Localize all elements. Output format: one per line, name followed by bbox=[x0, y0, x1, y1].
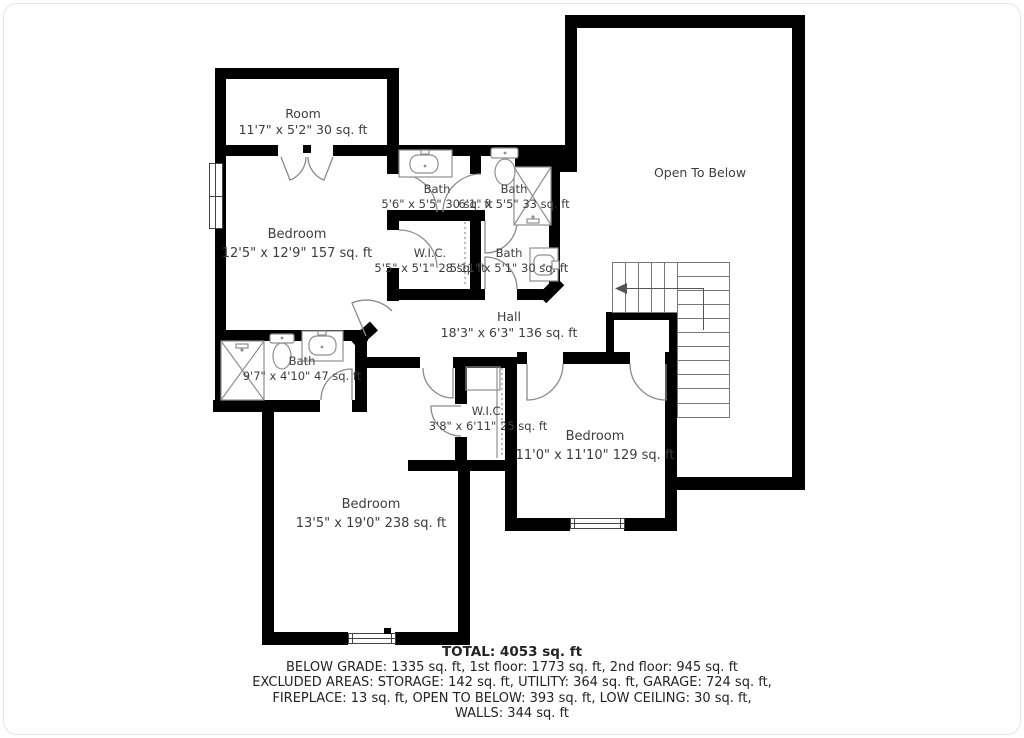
wall-segment bbox=[360, 357, 420, 368]
wall-segment bbox=[606, 312, 677, 320]
floor-plan-page: Room 11'7" x 5'2" 30 sq. ft Bedroom 12'5… bbox=[0, 0, 1024, 738]
door-swing bbox=[423, 368, 453, 398]
wall-segment bbox=[565, 15, 805, 28]
stair-flight-right bbox=[678, 263, 730, 418]
room-label-open-to-below: Open To Below bbox=[654, 165, 746, 181]
wall-segment bbox=[505, 518, 570, 531]
wall-segment bbox=[517, 352, 527, 364]
wall-segment bbox=[677, 477, 805, 490]
wall-segment bbox=[470, 148, 481, 174]
room-label-hall: Hall 18'3" x 6'3" 136 sq. ft bbox=[441, 309, 578, 341]
wall-diagonal bbox=[542, 281, 560, 299]
room-label-room: Room 11'7" x 5'2" 30 sq. ft bbox=[239, 106, 368, 138]
summary-floors: BELOW GRADE: 1335 sq. ft, 1st floor: 177… bbox=[0, 660, 1024, 675]
room-label-bedroom-bl: Bedroom 13'5" x 19'0" 238 sq. ft bbox=[296, 495, 447, 533]
closet-shelf bbox=[466, 367, 500, 390]
stair-direction-arrow-icon bbox=[615, 283, 627, 294]
area-summary: TOTAL: 4053 sq. ft BELOW GRADE: 1335 sq.… bbox=[0, 644, 1024, 721]
summary-excluded-2: FIREPLACE: 13 sq. ft, OPEN TO BELOW: 393… bbox=[0, 691, 1024, 706]
summary-walls: WALLS: 344 sq. ft bbox=[0, 706, 1024, 721]
door-swing bbox=[281, 157, 306, 180]
summary-total: TOTAL: 4053 sq. ft bbox=[0, 644, 1024, 660]
stair-direction-path bbox=[624, 289, 704, 331]
wall-segment bbox=[563, 352, 630, 364]
door-swing bbox=[527, 364, 563, 400]
wall-diagonal bbox=[354, 326, 374, 344]
room-label-bath-2: Bath 6'1" x 5'5" 33 sq. ft bbox=[458, 182, 569, 212]
room-label-bath-3: Bath 5'11" x 5'1" 30 sq. ft bbox=[450, 246, 569, 276]
wall-segment bbox=[262, 400, 274, 645]
door-swing bbox=[630, 364, 666, 400]
sink-vanity bbox=[399, 150, 452, 177]
floor-plan-drawing bbox=[0, 0, 1024, 738]
wall-segment bbox=[303, 145, 311, 153]
wall-segment bbox=[458, 460, 470, 645]
room-label-bedroom-tl: Bedroom 12'5" x 12'9" 157 sq. ft bbox=[222, 225, 373, 263]
wall-segment bbox=[792, 15, 805, 490]
room-label-bedroom-br: Bedroom 11'0" x 11'10" 129 sq. ft bbox=[516, 427, 675, 465]
wall-segment bbox=[565, 15, 577, 157]
summary-excluded-1: EXCLUDED AREAS: STORAGE: 142 sq. ft, UTI… bbox=[0, 675, 1024, 690]
wall-segment bbox=[387, 289, 485, 300]
wall-segment bbox=[455, 368, 467, 404]
window bbox=[571, 519, 625, 529]
wall-segment bbox=[387, 148, 399, 174]
wall-segment bbox=[215, 145, 278, 156]
wall-segment bbox=[387, 68, 399, 156]
room-label-bath-4: Bath 9'7" x 4'10" 47 sq. ft bbox=[243, 354, 362, 384]
window bbox=[349, 628, 396, 644]
window bbox=[210, 164, 223, 229]
wall-segment bbox=[455, 437, 467, 463]
wall-segment bbox=[352, 400, 367, 412]
wall-segment bbox=[215, 68, 391, 79]
wall-segment bbox=[669, 312, 677, 364]
door-swing bbox=[308, 157, 333, 180]
